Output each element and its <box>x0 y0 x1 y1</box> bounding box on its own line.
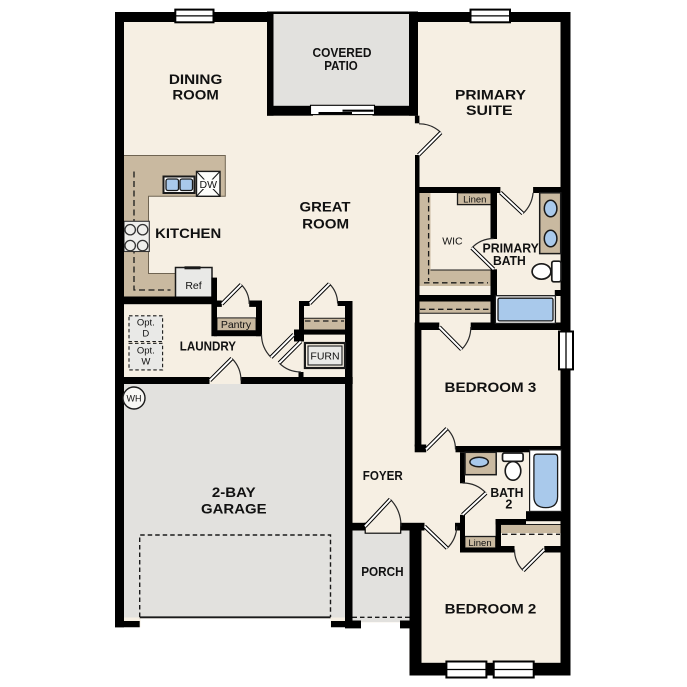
svg-text:BEDROOM 3: BEDROOM 3 <box>445 379 537 395</box>
svg-text:Linen: Linen <box>463 194 486 205</box>
svg-text:W: W <box>141 357 150 368</box>
svg-text:Linen: Linen <box>468 538 491 549</box>
svg-text:ROOM: ROOM <box>302 215 349 231</box>
svg-text:GARAGE: GARAGE <box>201 501 267 517</box>
svg-text:ROOM: ROOM <box>172 87 218 103</box>
svg-text:PORCH: PORCH <box>361 565 403 579</box>
svg-text:FURN: FURN <box>310 351 339 363</box>
svg-text:BATH: BATH <box>493 254 526 268</box>
svg-text:WIC: WIC <box>442 236 463 248</box>
svg-text:2-BAY: 2-BAY <box>212 484 256 500</box>
svg-text:Opt.: Opt. <box>137 346 155 357</box>
svg-text:PRIMARY: PRIMARY <box>455 87 527 103</box>
svg-text:DINING: DINING <box>169 71 223 87</box>
svg-text:DW: DW <box>200 179 218 191</box>
svg-text:WH: WH <box>127 393 142 403</box>
svg-text:GREAT: GREAT <box>300 199 351 215</box>
svg-text:Ref: Ref <box>185 280 201 292</box>
svg-text:FOYER: FOYER <box>363 469 403 483</box>
svg-text:PATIO: PATIO <box>324 59 358 73</box>
svg-text:Pantry: Pantry <box>221 319 252 331</box>
svg-text:BEDROOM 2: BEDROOM 2 <box>445 601 537 617</box>
svg-text:SUITE: SUITE <box>466 102 513 118</box>
svg-text:Opt.: Opt. <box>137 318 155 329</box>
svg-text:KITCHEN: KITCHEN <box>155 226 221 241</box>
svg-text:2: 2 <box>505 497 512 511</box>
svg-text:LAUNDRY: LAUNDRY <box>180 339 237 354</box>
svg-text:D: D <box>142 329 149 340</box>
